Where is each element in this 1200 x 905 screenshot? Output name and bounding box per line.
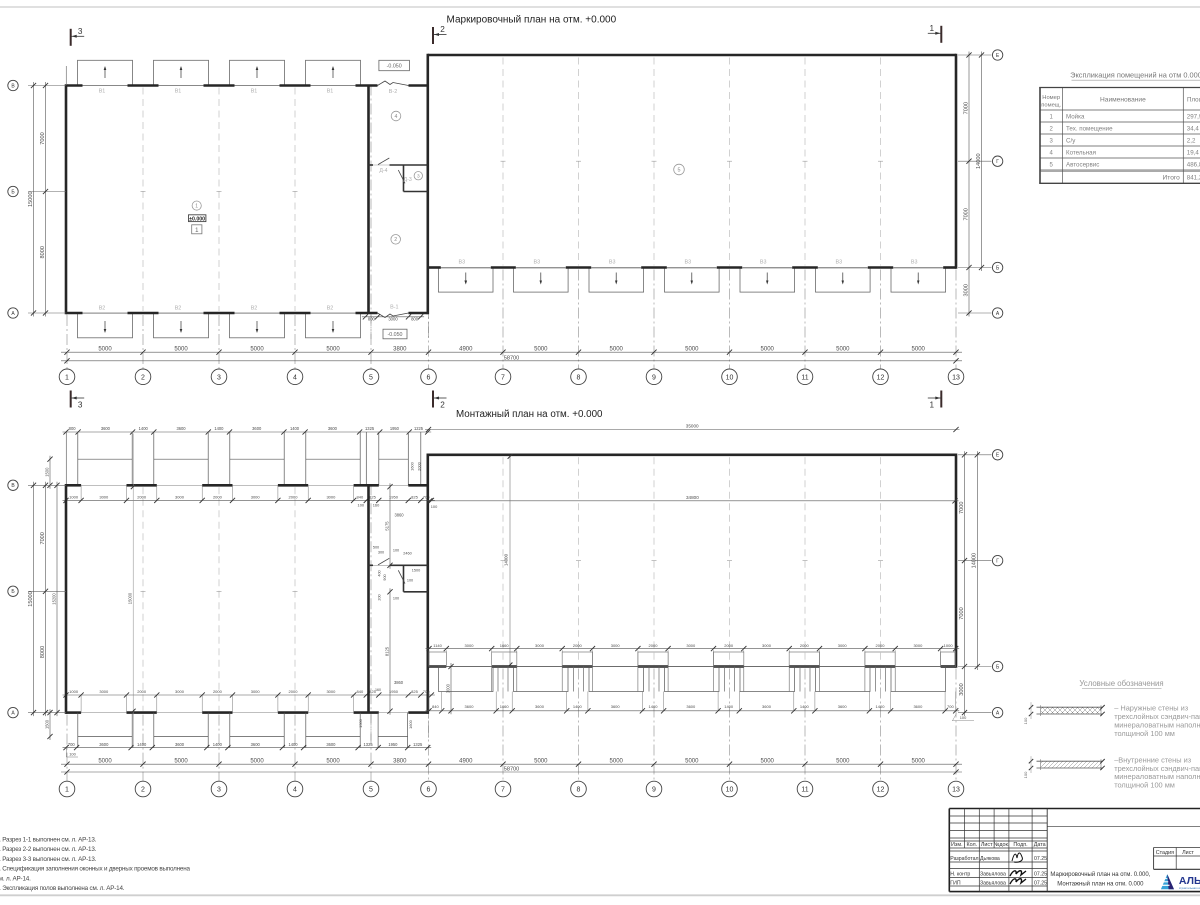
svg-text:5. Экспликация полов выполнена: 5. Экспликация полов выполнена см. л. АР… bbox=[0, 885, 125, 892]
svg-text:13: 13 bbox=[952, 374, 960, 381]
svg-text:4: 4 bbox=[395, 114, 398, 120]
svg-text:В-1: В-1 bbox=[390, 305, 398, 311]
svg-text:160: 160 bbox=[373, 503, 380, 508]
svg-text:10: 10 bbox=[726, 374, 734, 381]
svg-text:8125: 8125 bbox=[384, 646, 389, 656]
svg-text:3600: 3600 bbox=[838, 704, 848, 709]
svg-text:7000: 7000 bbox=[959, 501, 965, 513]
svg-text:3600: 3600 bbox=[99, 742, 109, 747]
svg-text:700: 700 bbox=[68, 742, 76, 747]
svg-text:5000: 5000 bbox=[98, 347, 112, 353]
svg-text:2000: 2000 bbox=[289, 495, 299, 500]
svg-text:1000: 1000 bbox=[69, 495, 79, 500]
svg-text:3600: 3600 bbox=[326, 742, 336, 747]
svg-text:825: 825 bbox=[411, 495, 418, 500]
svg-text:07.25: 07.25 bbox=[1034, 872, 1047, 878]
svg-text:5000: 5000 bbox=[98, 759, 112, 765]
svg-text:1: 1 bbox=[65, 787, 69, 794]
svg-text:3000: 3000 bbox=[838, 643, 848, 648]
svg-text:800: 800 bbox=[411, 317, 419, 322]
svg-text:В3: В3 bbox=[911, 260, 918, 266]
svg-text:3000: 3000 bbox=[326, 495, 336, 500]
svg-text:19,4: 19,4 bbox=[1187, 150, 1200, 157]
svg-text:2,2: 2,2 bbox=[1187, 138, 1196, 145]
svg-text:5000: 5000 bbox=[836, 347, 850, 353]
svg-text:5: 5 bbox=[369, 374, 373, 381]
svg-text:15000: 15000 bbox=[28, 591, 34, 607]
svg-text:3000: 3000 bbox=[99, 495, 109, 500]
svg-text:Н. контр: Н. контр bbox=[950, 872, 970, 878]
svg-text:1400: 1400 bbox=[139, 426, 149, 431]
svg-text:11: 11 bbox=[801, 374, 808, 381]
svg-text:1: 1 bbox=[195, 203, 198, 209]
svg-text:840: 840 bbox=[357, 689, 364, 694]
svg-text:4: 4 bbox=[293, 374, 297, 381]
svg-text:3000: 3000 bbox=[959, 683, 965, 695]
svg-text:1660: 1660 bbox=[500, 643, 510, 648]
svg-text:3600: 3600 bbox=[328, 426, 338, 431]
svg-text:1400: 1400 bbox=[800, 704, 810, 709]
svg-text:В3: В3 bbox=[459, 260, 466, 266]
svg-text:100: 100 bbox=[358, 503, 365, 508]
svg-text:1500: 1500 bbox=[44, 719, 49, 729]
svg-text:15000: 15000 bbox=[28, 191, 34, 207]
svg-text:5000: 5000 bbox=[174, 347, 188, 353]
svg-text:1950: 1950 bbox=[389, 689, 399, 694]
svg-text:1500: 1500 bbox=[358, 718, 363, 727]
svg-text:34800: 34800 bbox=[686, 495, 699, 500]
svg-text:900: 900 bbox=[383, 574, 387, 580]
svg-text:3000: 3000 bbox=[175, 689, 185, 694]
svg-text:5000: 5000 bbox=[250, 347, 264, 353]
svg-text:4. Спецификация заполнения око: 4. Спецификация заполнения оконных и две… bbox=[0, 866, 190, 873]
svg-text:07.25: 07.25 bbox=[1034, 856, 1047, 862]
svg-text:160: 160 bbox=[375, 688, 381, 692]
svg-text:3600: 3600 bbox=[762, 704, 772, 709]
svg-text:3: 3 bbox=[78, 27, 83, 36]
svg-text:5000: 5000 bbox=[761, 759, 775, 765]
svg-text:2000: 2000 bbox=[289, 689, 299, 694]
svg-text:1400: 1400 bbox=[290, 426, 300, 431]
svg-text:2000: 2000 bbox=[800, 643, 810, 648]
svg-text:100: 100 bbox=[393, 549, 399, 553]
svg-text:3600: 3600 bbox=[101, 426, 111, 431]
svg-text:толщиной 100 мм: толщиной 100 мм bbox=[1114, 729, 1175, 738]
svg-text:14000: 14000 bbox=[972, 553, 978, 569]
svg-text:6: 6 bbox=[427, 374, 431, 381]
svg-text:1060: 1060 bbox=[500, 704, 510, 709]
svg-text:58700: 58700 bbox=[504, 355, 520, 361]
svg-text:3000: 3000 bbox=[251, 689, 261, 694]
svg-text:1400: 1400 bbox=[876, 704, 886, 709]
svg-text:8: 8 bbox=[577, 787, 581, 794]
svg-text:2: 2 bbox=[440, 400, 445, 409]
svg-text:5000: 5000 bbox=[836, 759, 850, 765]
svg-text:3000: 3000 bbox=[762, 643, 772, 648]
svg-text:1325: 1325 bbox=[413, 742, 423, 747]
svg-text:3: 3 bbox=[217, 787, 221, 794]
svg-text:7: 7 bbox=[501, 787, 505, 794]
svg-text:1400: 1400 bbox=[213, 742, 223, 747]
svg-text:3600: 3600 bbox=[913, 704, 923, 709]
svg-text:07.25: 07.25 bbox=[1034, 880, 1047, 886]
svg-text:841,2: 841,2 bbox=[1187, 174, 1200, 181]
svg-text:В3: В3 bbox=[609, 260, 616, 266]
svg-text:5175: 5175 bbox=[384, 521, 389, 531]
svg-text:1: 1 bbox=[65, 374, 69, 381]
svg-text:5000: 5000 bbox=[326, 759, 340, 765]
svg-text:200: 200 bbox=[378, 594, 382, 600]
svg-text:3860: 3860 bbox=[394, 513, 404, 518]
svg-text:486,8: 486,8 bbox=[1187, 162, 1200, 169]
svg-text:1600: 1600 bbox=[408, 719, 413, 728]
svg-text:1950: 1950 bbox=[389, 495, 399, 500]
svg-text:3000: 3000 bbox=[611, 643, 621, 648]
svg-text:3000: 3000 bbox=[686, 643, 696, 648]
svg-text:В2: В2 bbox=[251, 306, 258, 312]
svg-text:2000: 2000 bbox=[876, 643, 886, 648]
svg-text:15200: 15200 bbox=[51, 593, 56, 605]
svg-text:Автосервис: Автосервис bbox=[1066, 162, 1099, 169]
svg-text:Маркировочный план на отм. 0.0: Маркировочный план на отм. 0.000, bbox=[1050, 871, 1150, 878]
svg-text:Номер: Номер bbox=[1042, 95, 1060, 101]
svg-text:Г: Г bbox=[996, 558, 999, 564]
svg-text:Маркировочный план на отм. +0.: Маркировочный план на отм. +0.000 bbox=[447, 15, 617, 26]
svg-text:7000: 7000 bbox=[40, 532, 46, 544]
svg-text:2: 2 bbox=[141, 787, 145, 794]
svg-text:6: 6 bbox=[427, 787, 431, 794]
svg-text:2: 2 bbox=[440, 25, 445, 34]
svg-text:1400: 1400 bbox=[137, 742, 147, 747]
svg-text:В2: В2 bbox=[327, 306, 334, 312]
svg-text:1500: 1500 bbox=[412, 569, 420, 573]
svg-text:7000: 7000 bbox=[40, 132, 46, 144]
svg-text:3600: 3600 bbox=[686, 704, 696, 709]
svg-text:400: 400 bbox=[378, 570, 382, 576]
svg-text:Площадь,: Площадь, bbox=[1187, 97, 1200, 104]
svg-text:В1: В1 bbox=[99, 89, 106, 95]
svg-text:3000: 3000 bbox=[913, 643, 923, 648]
svg-text:4: 4 bbox=[293, 787, 297, 794]
svg-text:В2: В2 bbox=[99, 306, 106, 312]
svg-text:14000: 14000 bbox=[976, 153, 982, 169]
svg-text:12: 12 bbox=[877, 787, 885, 794]
svg-text:10: 10 bbox=[726, 787, 734, 794]
svg-text:7: 7 bbox=[501, 374, 505, 381]
svg-text:100: 100 bbox=[431, 504, 438, 509]
svg-text:800: 800 bbox=[69, 426, 77, 431]
svg-text:№док.: №док. bbox=[994, 842, 1010, 848]
svg-text:В3: В3 bbox=[760, 260, 767, 266]
svg-text:100: 100 bbox=[407, 579, 413, 583]
svg-text:4900: 4900 bbox=[459, 347, 473, 353]
svg-text:100: 100 bbox=[69, 751, 76, 756]
svg-text:2000: 2000 bbox=[724, 643, 734, 648]
svg-text:3800: 3800 bbox=[393, 759, 407, 765]
svg-text:2460: 2460 bbox=[403, 552, 411, 556]
svg-text:3: 3 bbox=[78, 400, 83, 409]
svg-text:700: 700 bbox=[947, 704, 954, 709]
svg-text:Г: Г bbox=[996, 159, 999, 165]
svg-text:-0.050: -0.050 bbox=[387, 332, 402, 338]
svg-text:Монтажный план на отм. 0.000: Монтажный план на отм. 0.000 bbox=[1057, 880, 1144, 887]
svg-text:В1: В1 bbox=[327, 89, 334, 95]
svg-text:см. л. АР-14.: см. л. АР-14. bbox=[0, 875, 31, 882]
svg-text:5000: 5000 bbox=[685, 347, 699, 353]
svg-text:3600: 3600 bbox=[535, 704, 545, 709]
svg-text:3800: 3800 bbox=[393, 347, 407, 353]
svg-text:1000: 1000 bbox=[944, 643, 954, 648]
svg-text:1600: 1600 bbox=[410, 461, 415, 470]
svg-text:5000: 5000 bbox=[912, 759, 926, 765]
svg-text:помещ.: помещ. bbox=[1041, 103, 1061, 109]
svg-text:1400: 1400 bbox=[724, 704, 734, 709]
svg-text:1: 1 bbox=[930, 400, 935, 409]
svg-text:15000: 15000 bbox=[128, 592, 133, 604]
svg-text:Стадия: Стадия bbox=[1156, 850, 1174, 856]
svg-text:Д-4: Д-4 bbox=[379, 168, 387, 174]
svg-text:3000: 3000 bbox=[963, 284, 969, 296]
svg-text:5000: 5000 bbox=[250, 759, 264, 765]
svg-text:3000: 3000 bbox=[445, 683, 450, 693]
svg-text:Монтажный план на отм. +0.000: Монтажный план на отм. +0.000 bbox=[456, 409, 603, 420]
svg-text:2: 2 bbox=[394, 237, 397, 243]
svg-text:2000: 2000 bbox=[417, 461, 422, 470]
svg-text:Наименование: Наименование bbox=[1100, 97, 1146, 104]
svg-text:1500: 1500 bbox=[44, 467, 49, 477]
svg-text:1140: 1140 bbox=[433, 643, 442, 648]
svg-text:1950: 1950 bbox=[388, 742, 398, 747]
svg-text:11: 11 bbox=[801, 787, 808, 794]
svg-text:8000: 8000 bbox=[40, 246, 46, 258]
svg-text:2000: 2000 bbox=[137, 495, 147, 500]
svg-text:7000: 7000 bbox=[963, 102, 969, 114]
svg-text:100: 100 bbox=[393, 597, 399, 601]
svg-text:100: 100 bbox=[960, 715, 967, 720]
svg-text:9: 9 bbox=[652, 787, 656, 794]
svg-text:-0.050: -0.050 bbox=[387, 63, 402, 69]
svg-text:3600: 3600 bbox=[465, 704, 475, 709]
svg-text:100: 100 bbox=[1023, 717, 1028, 724]
svg-text:5000: 5000 bbox=[174, 759, 188, 765]
svg-text:2000: 2000 bbox=[213, 689, 223, 694]
svg-text:2000: 2000 bbox=[137, 689, 147, 694]
svg-text:3600: 3600 bbox=[175, 742, 185, 747]
svg-text:825: 825 bbox=[411, 689, 418, 694]
svg-text:5: 5 bbox=[369, 787, 373, 794]
svg-text:Экспликация помещений на отм 0: Экспликация помещений на отм 0.000 bbox=[1070, 71, 1200, 80]
svg-text:840: 840 bbox=[432, 704, 439, 709]
svg-text:В3: В3 bbox=[836, 260, 843, 266]
svg-text:В1: В1 bbox=[175, 89, 182, 95]
svg-text:3: 3 bbox=[417, 173, 420, 179]
svg-text:Завьялова: Завьялова bbox=[980, 880, 1006, 886]
svg-text:Подп.: Подп. bbox=[1013, 842, 1027, 848]
svg-text:ГИП: ГИП bbox=[950, 880, 961, 886]
svg-text:Кол.: Кол. bbox=[966, 842, 977, 848]
svg-text:825: 825 bbox=[369, 495, 376, 500]
svg-text:58700: 58700 bbox=[504, 767, 520, 773]
svg-text:300: 300 bbox=[378, 551, 384, 555]
svg-text:34,4: 34,4 bbox=[1187, 126, 1200, 133]
svg-text:297,9: 297,9 bbox=[1187, 114, 1200, 121]
svg-text:13: 13 bbox=[952, 787, 960, 794]
svg-text:3000: 3000 bbox=[99, 689, 109, 694]
svg-text:Разработал: Разработал bbox=[950, 856, 978, 862]
svg-text:1400: 1400 bbox=[288, 742, 298, 747]
svg-text:В2: В2 bbox=[175, 306, 182, 312]
svg-text:3000: 3000 bbox=[388, 317, 398, 322]
svg-text:2000: 2000 bbox=[573, 643, 583, 648]
svg-text:В-2: В-2 bbox=[389, 89, 397, 95]
svg-text:12: 12 bbox=[877, 374, 885, 381]
svg-text:1400: 1400 bbox=[573, 704, 583, 709]
svg-text:5000: 5000 bbox=[534, 347, 548, 353]
svg-text:строительная комп: строительная комп bbox=[1179, 886, 1200, 890]
svg-text:3. Разрез 3-3 выполнен см. л.: 3. Разрез 3-3 выполнен см. л. АР-13. bbox=[0, 856, 97, 863]
svg-text:3600: 3600 bbox=[251, 742, 261, 747]
svg-text:С/у: С/у bbox=[1066, 138, 1076, 145]
svg-text:Завьялова: Завьялова bbox=[980, 872, 1006, 878]
svg-text:1: 1 bbox=[930, 24, 935, 33]
svg-text:2: 2 bbox=[141, 374, 145, 381]
svg-text:7000: 7000 bbox=[959, 607, 965, 619]
svg-text:Итого: Итого bbox=[1163, 174, 1181, 181]
svg-text:3000: 3000 bbox=[251, 495, 261, 500]
svg-text:14000: 14000 bbox=[504, 553, 509, 566]
svg-text:4900: 4900 bbox=[459, 759, 473, 765]
svg-text:2000: 2000 bbox=[649, 643, 659, 648]
svg-text:5000: 5000 bbox=[761, 347, 775, 353]
svg-text:Изм.: Изм. bbox=[951, 842, 963, 848]
svg-text:В1: В1 bbox=[251, 89, 258, 95]
svg-text:5000: 5000 bbox=[610, 759, 624, 765]
svg-text:840: 840 bbox=[357, 495, 364, 500]
svg-text:3600: 3600 bbox=[176, 426, 186, 431]
svg-text:3600: 3600 bbox=[611, 704, 621, 709]
svg-text:5000: 5000 bbox=[534, 759, 548, 765]
svg-text:3000: 3000 bbox=[326, 689, 336, 694]
svg-text:8000: 8000 bbox=[40, 646, 46, 658]
svg-text:800: 800 bbox=[368, 317, 376, 322]
svg-text:В3: В3 bbox=[534, 260, 541, 266]
svg-text:Дьякова: Дьякова bbox=[980, 856, 1000, 862]
svg-text:Мойка: Мойка bbox=[1066, 114, 1085, 121]
svg-text:7000: 7000 bbox=[963, 208, 969, 220]
svg-text:3600: 3600 bbox=[252, 426, 262, 431]
svg-text:1325: 1325 bbox=[364, 742, 374, 747]
svg-text:1. Разрез 1-1 выполнен см. л.: 1. Разрез 1-1 выполнен см. л. АР-13. bbox=[0, 837, 97, 844]
svg-text:8: 8 bbox=[577, 374, 581, 381]
svg-text:Лист: Лист bbox=[981, 842, 993, 848]
svg-text:5000: 5000 bbox=[326, 347, 340, 353]
svg-text:2. Разрез 2-2 выполнен см. л.: 2. Разрез 2-2 выполнен см. л. АР-13. bbox=[0, 846, 97, 853]
svg-text:1400: 1400 bbox=[214, 426, 224, 431]
svg-text:35000: 35000 bbox=[686, 424, 699, 429]
svg-text:100: 100 bbox=[1023, 771, 1028, 778]
svg-text:2000: 2000 bbox=[213, 495, 223, 500]
svg-text:3: 3 bbox=[217, 374, 221, 381]
svg-text:±0.000: ±0.000 bbox=[189, 216, 205, 222]
svg-text:толщиной 100 мм: толщиной 100 мм bbox=[1114, 781, 1175, 790]
svg-text:3860: 3860 bbox=[394, 680, 404, 685]
svg-text:5000: 5000 bbox=[610, 347, 624, 353]
svg-text:9: 9 bbox=[652, 374, 656, 381]
svg-text:Дата: Дата bbox=[1034, 842, 1046, 848]
svg-text:В3: В3 bbox=[685, 260, 692, 266]
svg-text:5: 5 bbox=[678, 167, 681, 173]
svg-text:1225: 1225 bbox=[414, 426, 424, 431]
svg-text:1000: 1000 bbox=[69, 689, 79, 694]
svg-text:Д-3: Д-3 bbox=[404, 177, 412, 183]
svg-text:Лист: Лист bbox=[1182, 850, 1194, 856]
svg-text:Котельная: Котельная bbox=[1066, 150, 1096, 157]
svg-text:1325: 1325 bbox=[365, 426, 375, 431]
svg-text:Условные обозначения: Условные обозначения bbox=[1079, 679, 1163, 688]
svg-text:3000: 3000 bbox=[465, 643, 475, 648]
svg-text:Тех. помещение: Тех. помещение bbox=[1066, 126, 1113, 133]
svg-text:3000: 3000 bbox=[535, 643, 545, 648]
svg-text:5000: 5000 bbox=[912, 347, 926, 353]
svg-text:1400: 1400 bbox=[649, 704, 659, 709]
svg-text:500: 500 bbox=[373, 546, 379, 550]
svg-text:1950: 1950 bbox=[390, 426, 400, 431]
svg-text:3000: 3000 bbox=[175, 495, 185, 500]
svg-text:5000: 5000 bbox=[685, 759, 699, 765]
